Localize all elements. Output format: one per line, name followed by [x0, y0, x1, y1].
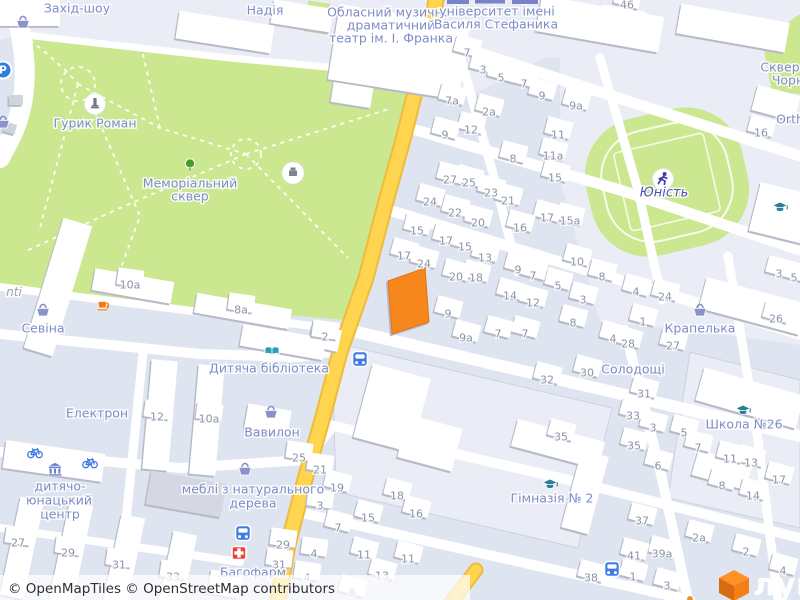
house-number: 27 [443, 174, 457, 187]
house-number: 39a [652, 548, 673, 561]
house-number: 2a [482, 106, 496, 119]
house-number: 33 [626, 410, 640, 423]
house-number: 7a [445, 95, 459, 108]
house-number: 22 [448, 207, 462, 220]
house-number: 27 [666, 340, 680, 353]
house-number: 17 [772, 474, 786, 487]
map-label: Юність [640, 186, 689, 201]
house-number: 3 [776, 268, 783, 281]
house-number: 25 [462, 177, 476, 190]
house-number: 8 [719, 480, 726, 493]
house-number: 2 [743, 546, 750, 559]
map-label: Василя Стефаника [434, 17, 558, 32]
house-number: 5 [498, 72, 505, 85]
bus-icon[interactable] [236, 526, 251, 541]
bus-icon[interactable] [605, 562, 620, 577]
house-number: 24 [417, 258, 431, 271]
house-number: 6 [655, 460, 662, 473]
map-label: Гімназія № 2 [511, 491, 594, 506]
map-label: Крапелька [665, 321, 736, 336]
map-label: Чорн [772, 73, 800, 88]
house-number: 7 [530, 270, 537, 283]
map-label: Orth [776, 112, 800, 127]
house-number: 10 [570, 256, 584, 269]
house-number: 2a [692, 532, 706, 545]
house-number: 17 [439, 235, 453, 248]
house-number: 4 [311, 548, 318, 561]
house-number: 7 [695, 442, 702, 455]
house-number: 7 [495, 328, 502, 341]
house-number: 46 [620, 0, 634, 12]
house-number: 9 [445, 308, 452, 321]
map-label: сквер [171, 189, 208, 204]
map-label: Севіна [21, 321, 64, 336]
house-number: 9a [569, 100, 583, 113]
house-number: 35 [554, 431, 568, 444]
house-number: 21 [501, 195, 515, 208]
house-number: 13 [744, 457, 758, 470]
house-number: 17 [397, 250, 411, 263]
house-number: 18 [390, 490, 404, 503]
house-number: 14 [503, 290, 517, 303]
house-number: 25 [292, 452, 306, 465]
house-number: 15 [548, 172, 562, 185]
house-number: 15 [410, 225, 424, 238]
map-label: дитячо- [34, 479, 85, 494]
house-number: 8 [599, 271, 606, 284]
icon-glyph: P [0, 65, 7, 77]
house-number: 8a [234, 304, 248, 317]
pharmacy-icon[interactable] [232, 547, 246, 560]
house-number: 5 [681, 427, 688, 440]
map-label: Гурик Роман [53, 116, 136, 131]
house-number: 15 [458, 241, 472, 254]
house-number: 10a [120, 279, 141, 292]
house-number: 3 [580, 294, 587, 307]
house-number: 20 [449, 271, 463, 284]
house-number: 8 [570, 317, 577, 330]
house-number: 28 [621, 338, 635, 351]
map-label: Вавилон [244, 425, 300, 440]
house-number: 37 [635, 515, 649, 528]
house-number: 18 [469, 272, 483, 285]
map-label: nti [6, 285, 22, 299]
house-number: 11 [401, 553, 415, 566]
map-label: Дитяча бібліотека [209, 361, 329, 376]
house-number: 24 [423, 196, 437, 209]
map-label: Школа №26 [705, 417, 782, 432]
house-number: 35 [627, 440, 641, 453]
house-number: 16 [754, 127, 768, 140]
map-label: центр [40, 507, 80, 522]
map-label: юнацький [26, 493, 92, 508]
house-number: 20 [471, 217, 485, 230]
map-label: Солодощі [601, 362, 665, 377]
house-number: 9 [539, 90, 546, 103]
house-number: 17 [540, 212, 554, 225]
house-number: 9a [459, 332, 473, 345]
house-number: 31 [637, 388, 651, 401]
house-number: 19 [330, 482, 344, 495]
map-label: дерева [230, 496, 277, 511]
map-label: Надія [247, 3, 284, 18]
house-number: 7 [521, 78, 528, 91]
house-number: 29 [276, 539, 290, 552]
house-number: 29 [61, 547, 75, 560]
lun-logo[interactable]: лун [719, 567, 800, 600]
house-number: 9 [442, 129, 449, 142]
house-number: 7 [464, 47, 471, 60]
map-viewport[interactable]: P 735797a2a9a91211811a154616272523212422… [0, 0, 800, 600]
house-number: 3 [317, 500, 324, 513]
map-label: Електрон [66, 406, 128, 421]
map-label: Захід-шоу [44, 1, 111, 16]
house-number: 4 [633, 286, 640, 299]
house-number: 2 [322, 331, 329, 344]
book-icon[interactable] [265, 347, 279, 355]
house-number: 16 [513, 222, 527, 235]
house-number: 26 [769, 313, 783, 326]
house-number: 10a [199, 413, 220, 426]
house-number: 5 [555, 280, 562, 293]
house-number: 5 [791, 272, 798, 285]
house-number: 11 [551, 129, 565, 142]
house-number: 7 [522, 328, 529, 341]
house-number: 7 [335, 522, 342, 535]
house-number: 13 [478, 252, 492, 265]
house-number: 16 [409, 508, 423, 521]
house-number: 12 [150, 411, 164, 424]
house-number: 1 [640, 316, 647, 329]
house-number: 11a [543, 150, 564, 163]
house-number: 27 [11, 537, 25, 550]
house-number: 9 [515, 264, 522, 277]
house-number: 14 [746, 490, 760, 503]
poi-circle-icon[interactable] [282, 162, 304, 184]
house-number: 11 [723, 453, 737, 466]
house-number: 12 [464, 124, 478, 137]
house-number: 3 [650, 422, 657, 435]
house-number: 1 [630, 571, 637, 584]
house-number: 32 [540, 374, 554, 387]
house-number: 38 [584, 572, 598, 585]
bus-icon[interactable] [353, 352, 368, 367]
house-number: 4 [610, 333, 617, 346]
map-label: меблі з натурального [182, 482, 324, 497]
house-number: 23 [484, 187, 498, 200]
house-number: 8 [510, 153, 517, 166]
house-number: 11 [357, 549, 371, 562]
house-number: 15 [361, 512, 375, 525]
house-number: 21 [313, 464, 327, 477]
house-number: 3 [480, 64, 487, 77]
logo-text: лун [753, 567, 800, 600]
house-number: 30 [580, 367, 594, 380]
house-number: 41 [627, 550, 641, 563]
house-number: 3 [664, 580, 671, 593]
house-number: 24 [658, 291, 672, 304]
house-number: 31 [112, 559, 126, 572]
monument-icon[interactable] [85, 94, 106, 115]
house-number: 15a [560, 215, 581, 228]
map-label: театр ім. І. Франка [329, 31, 453, 46]
dot-icon[interactable] [687, 596, 694, 600]
attribution-text[interactable]: © OpenMapTiles © OpenStreetMap contribut… [8, 581, 335, 597]
map-canvas[interactable]: P 735797a2a9a91211811a154616272523212422… [0, 0, 800, 600]
house-number: 12 [526, 297, 540, 310]
